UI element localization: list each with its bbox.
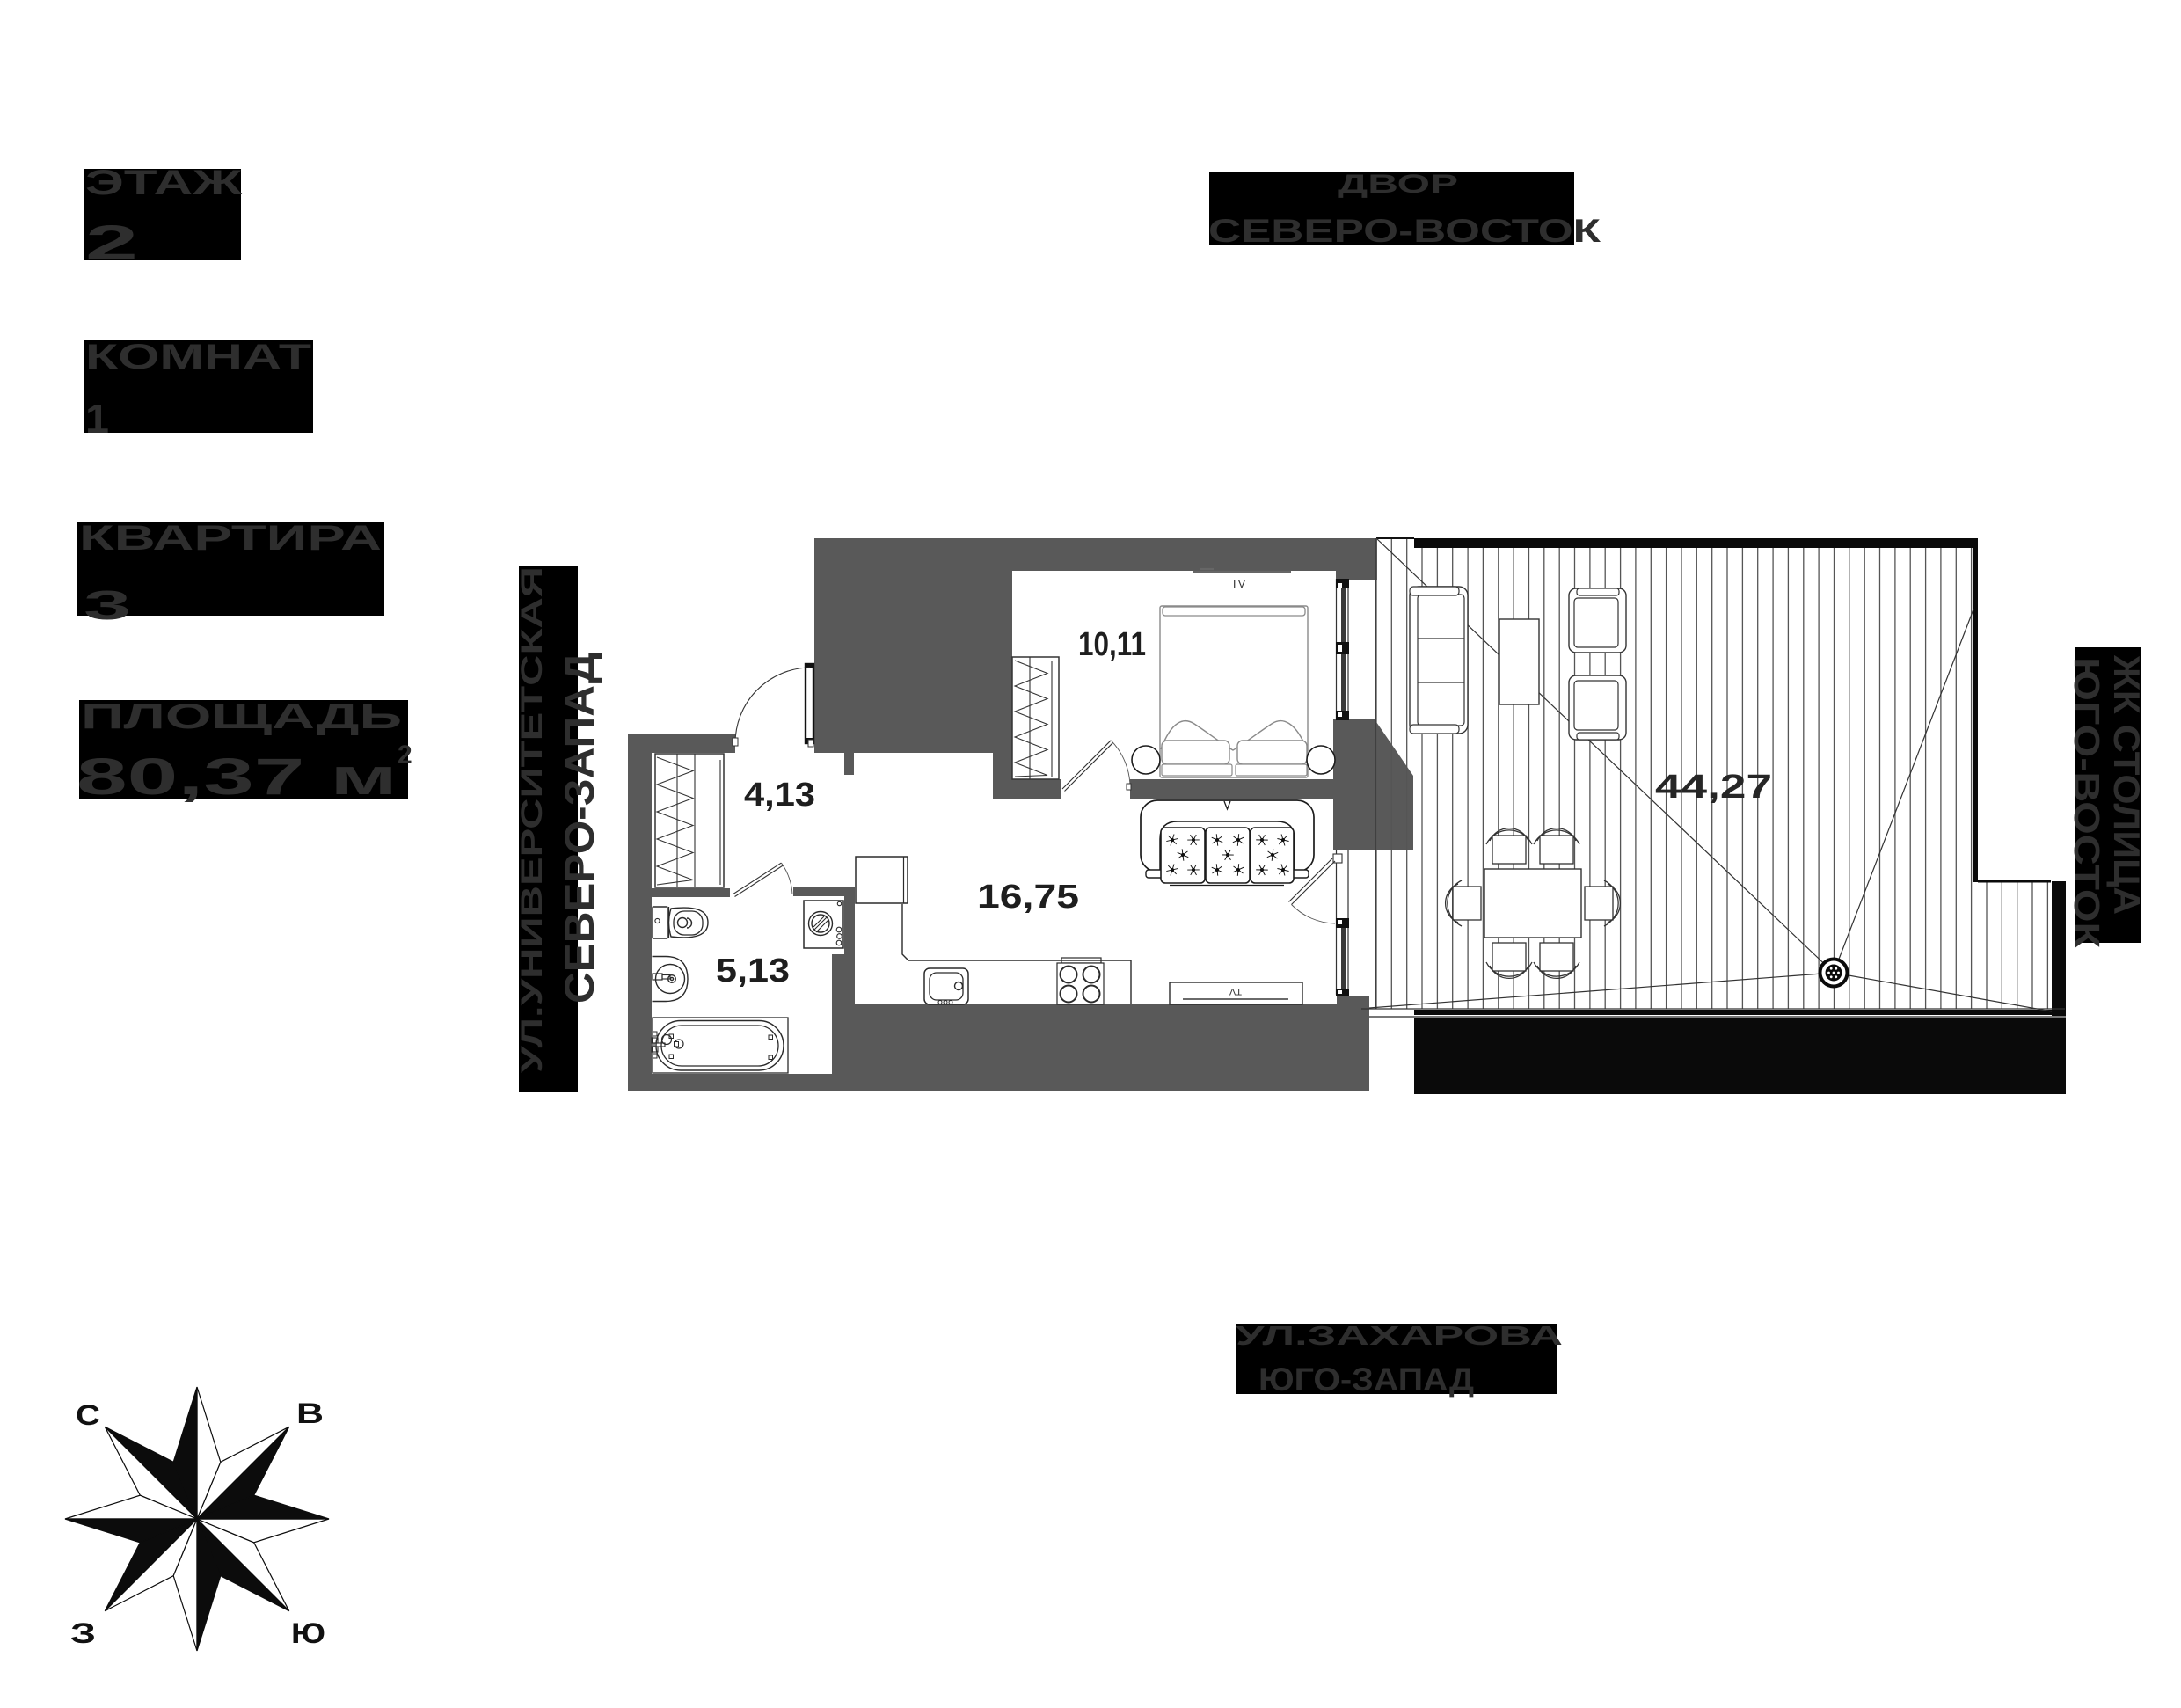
svg-text:УЛ.УНИВЕРСИТЕТСКАЯ: УЛ.УНИВЕРСИТЕТСКАЯ: [515, 566, 549, 1073]
svg-text:TV: TV: [1229, 986, 1242, 996]
svg-text:16,75: 16,75: [977, 879, 1079, 916]
svg-text:ЭТАЖ: ЭТАЖ: [85, 164, 243, 202]
svg-text:УЛ.ЗАХАРОВА: УЛ.ЗАХАРОВА: [1236, 1320, 1563, 1351]
svg-text:З: З: [70, 1617, 96, 1649]
svg-text:ЮГО-ЗАПАД: ЮГО-ЗАПАД: [1258, 1361, 1474, 1398]
svg-text:1: 1: [85, 396, 109, 442]
svg-text:80,37 м: 80,37 м: [77, 748, 398, 806]
svg-text:TV: TV: [1231, 577, 1246, 590]
svg-text:Ю: Ю: [291, 1617, 325, 1649]
svg-text:3: 3: [84, 582, 131, 628]
svg-text:В: В: [296, 1398, 324, 1429]
svg-text:2: 2: [85, 215, 138, 270]
svg-text:С: С: [76, 1399, 100, 1431]
svg-text:2: 2: [398, 741, 412, 770]
svg-text:КОМНАТ: КОМНАТ: [85, 338, 311, 376]
svg-text:4,13: 4,13: [744, 777, 815, 814]
svg-text:СЕВЕРО-ЗАПАД: СЕВЕРО-ЗАПАД: [556, 653, 602, 1004]
svg-text:ЮГО-ВОСТОК: ЮГО-ВОСТОК: [2067, 657, 2107, 949]
svg-text:5,13: 5,13: [716, 953, 790, 989]
svg-text:КВАРТИРА: КВАРТИРА: [79, 519, 382, 558]
svg-text:СЕВЕРО-ВОСТОК: СЕВЕРО-ВОСТОК: [1208, 213, 1601, 249]
svg-text:ПЛОЩАДЬ: ПЛОЩАДЬ: [81, 697, 402, 736]
svg-text:44,27: 44,27: [1655, 769, 1772, 806]
svg-text:ДВОР: ДВОР: [1338, 170, 1458, 199]
svg-text:10,11: 10,11: [1078, 626, 1146, 663]
svg-text:ЖК СТОЛИЦА: ЖК СТОЛИЦА: [2106, 654, 2148, 915]
